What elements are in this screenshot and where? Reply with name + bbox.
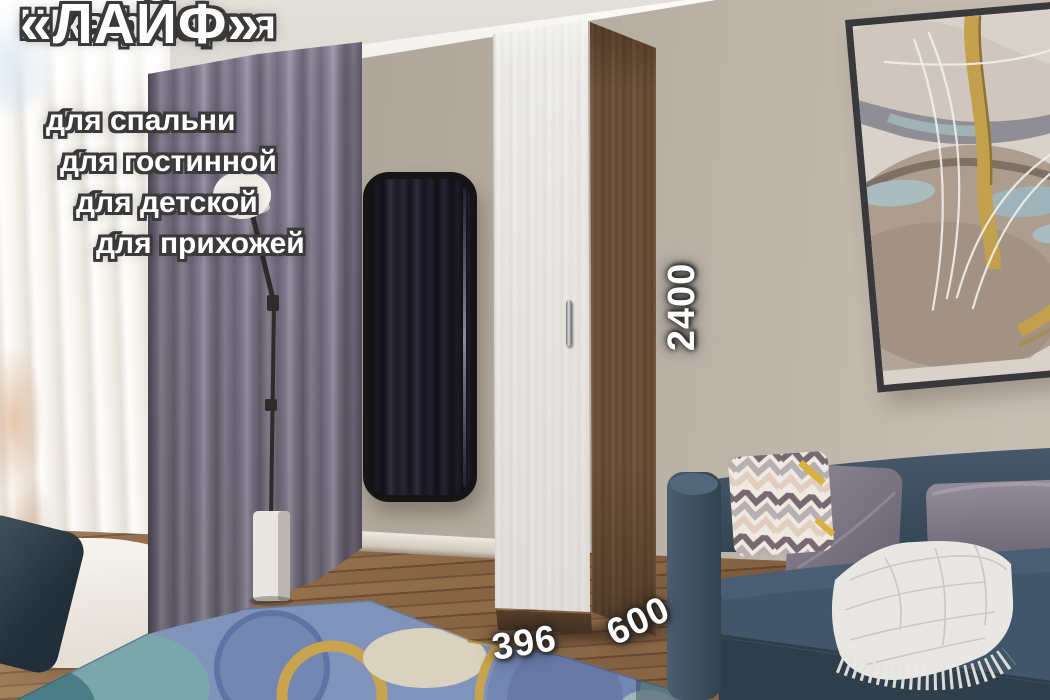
feature-list: ✔ для спальни ✔ для гостинной ✔ для детс… (46, 100, 126, 264)
sofa (655, 430, 1050, 700)
feature-item-living-room: ✔ для гостинной (60, 141, 126, 182)
wardrobe-handle (566, 300, 572, 346)
title-series-name: «ЛАЙФ» (20, 0, 260, 57)
sofa-armrest (667, 472, 721, 700)
chevron-pillow (728, 451, 835, 558)
wardrobe-door (490, 14, 592, 616)
wardrobe-side-panel (586, 16, 658, 638)
feature-label: для прихожей (96, 227, 305, 261)
dimension-height-label: 2400 (661, 237, 705, 377)
throw-blanket (832, 541, 1013, 680)
feature-label: для спальни (46, 104, 236, 138)
feature-label: для детской (76, 186, 258, 220)
feature-item-bedroom: ✔ для спальни (46, 100, 126, 141)
abstract-painting (845, 0, 1050, 393)
feature-item-kids-room: ✔ для детской (76, 182, 126, 223)
feature-item-hallway: ✔ для прихожей (96, 223, 126, 264)
feature-label: для гостинной (60, 145, 277, 179)
furniture-promo-image: Шкаф серия «ЛАЙФ» ✔ для спальни ✔ для го… (0, 0, 1050, 700)
